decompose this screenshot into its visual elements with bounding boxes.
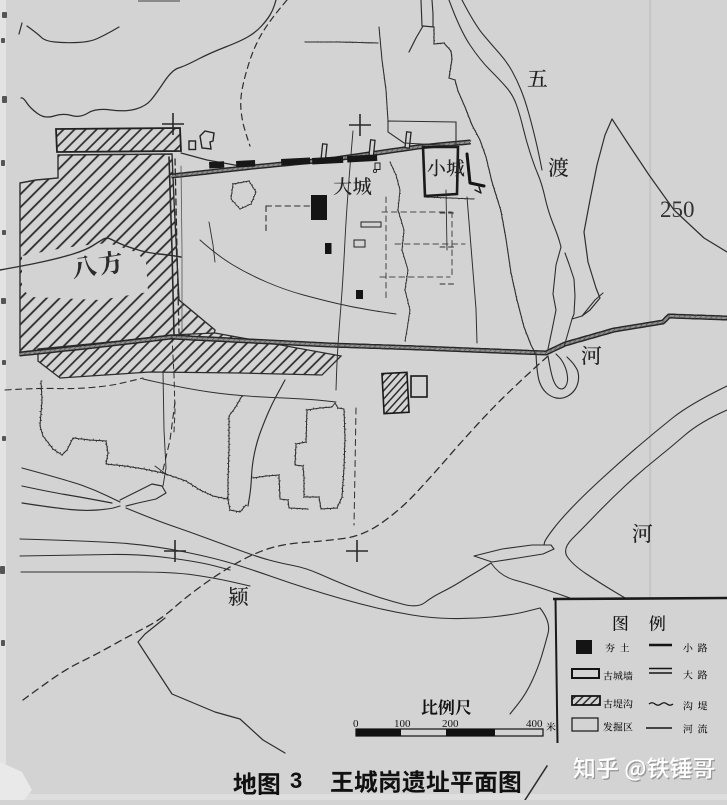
svg-text:3: 3	[290, 768, 302, 793]
svg-text:250: 250	[660, 197, 695, 222]
svg-text:0: 0	[353, 718, 359, 730]
svg-text:200: 200	[442, 718, 459, 730]
svg-text:400: 400	[526, 718, 543, 730]
svg-text:100: 100	[394, 718, 411, 730]
